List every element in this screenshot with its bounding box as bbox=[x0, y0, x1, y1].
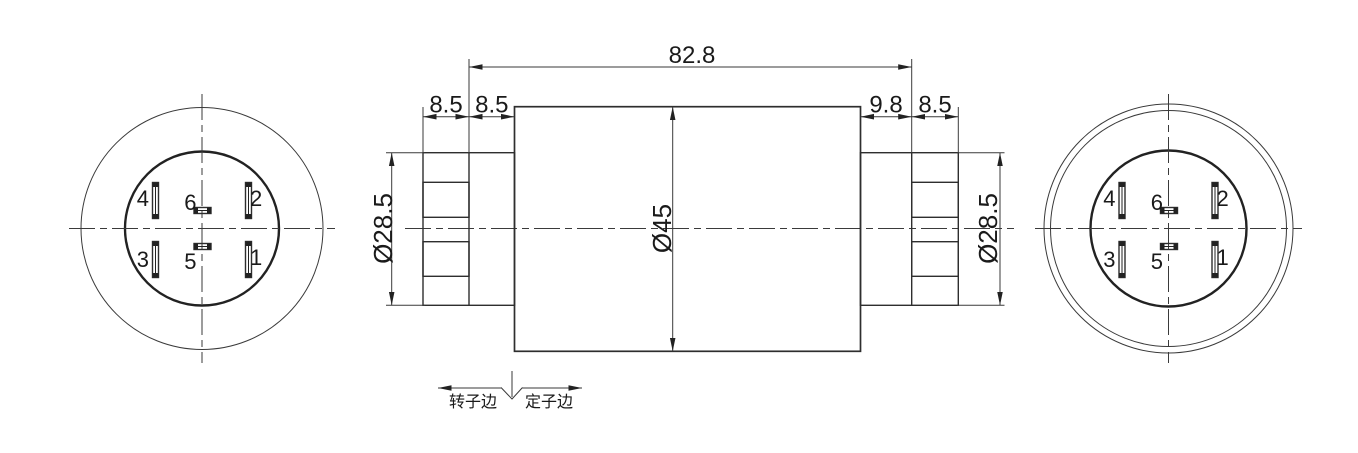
dim-body-diameter: Ø45 bbox=[647, 107, 677, 352]
left-upper-groove bbox=[423, 182, 469, 217]
dim-value: 8.5 bbox=[429, 92, 462, 119]
right-end-view: 4 2 6 5 3 1 bbox=[1035, 94, 1302, 363]
dim-value: Ø28.5 bbox=[368, 193, 398, 264]
dim-value: Ø28.5 bbox=[973, 193, 1003, 264]
side-view: 82.8 8.5 8.5 9.8 8.5 Ø28.5 Ø45 bbox=[368, 42, 1014, 351]
dim-value: 9.8 bbox=[869, 92, 902, 119]
slot-4 bbox=[153, 183, 159, 219]
drawing-canvas: 4 2 6 5 3 1 82.8 8.5 8.5 bbox=[0, 0, 1358, 453]
boundary-annotation: 转子边 定子边 bbox=[438, 371, 582, 411]
slot-label-6: 6 bbox=[184, 190, 196, 215]
dim-right-sections: 9.8 8.5 bbox=[861, 92, 959, 153]
dim-overall-length: 82.8 bbox=[469, 42, 912, 153]
technical-drawing: 4 2 6 5 3 1 82.8 8.5 8.5 bbox=[0, 0, 1358, 453]
dim-value: 8.5 bbox=[918, 92, 951, 119]
left-lower-groove bbox=[423, 242, 469, 277]
slot-label-2: 2 bbox=[1217, 186, 1229, 211]
rotor-side-label: 转子边 bbox=[449, 393, 497, 411]
slot-label-2: 2 bbox=[250, 186, 262, 211]
slot-label-1: 1 bbox=[250, 245, 262, 270]
slot-label-3: 3 bbox=[137, 247, 149, 272]
slot-3 bbox=[153, 242, 159, 278]
slot-label-1: 1 bbox=[1217, 245, 1229, 270]
slot-label-4: 4 bbox=[137, 186, 149, 211]
slot-label-5: 5 bbox=[184, 249, 196, 274]
slot-label-4: 4 bbox=[1103, 186, 1115, 211]
left-end-view: 4 2 6 5 3 1 bbox=[69, 94, 335, 363]
stator-side-label: 定子边 bbox=[525, 393, 573, 411]
slot-3 bbox=[1119, 242, 1125, 278]
slot-4 bbox=[1119, 183, 1125, 219]
right-lower-groove bbox=[912, 242, 959, 277]
right-upper-groove bbox=[912, 182, 959, 217]
dim-value: Ø45 bbox=[647, 204, 677, 253]
slot-label-5: 5 bbox=[1151, 249, 1163, 274]
slot-label-6: 6 bbox=[1151, 190, 1163, 215]
dim-value: 8.5 bbox=[475, 92, 508, 119]
slot-cluster: 4 2 6 5 3 1 bbox=[1103, 183, 1229, 278]
dim-value: 82.8 bbox=[669, 42, 716, 69]
slot-label-3: 3 bbox=[1103, 247, 1115, 272]
